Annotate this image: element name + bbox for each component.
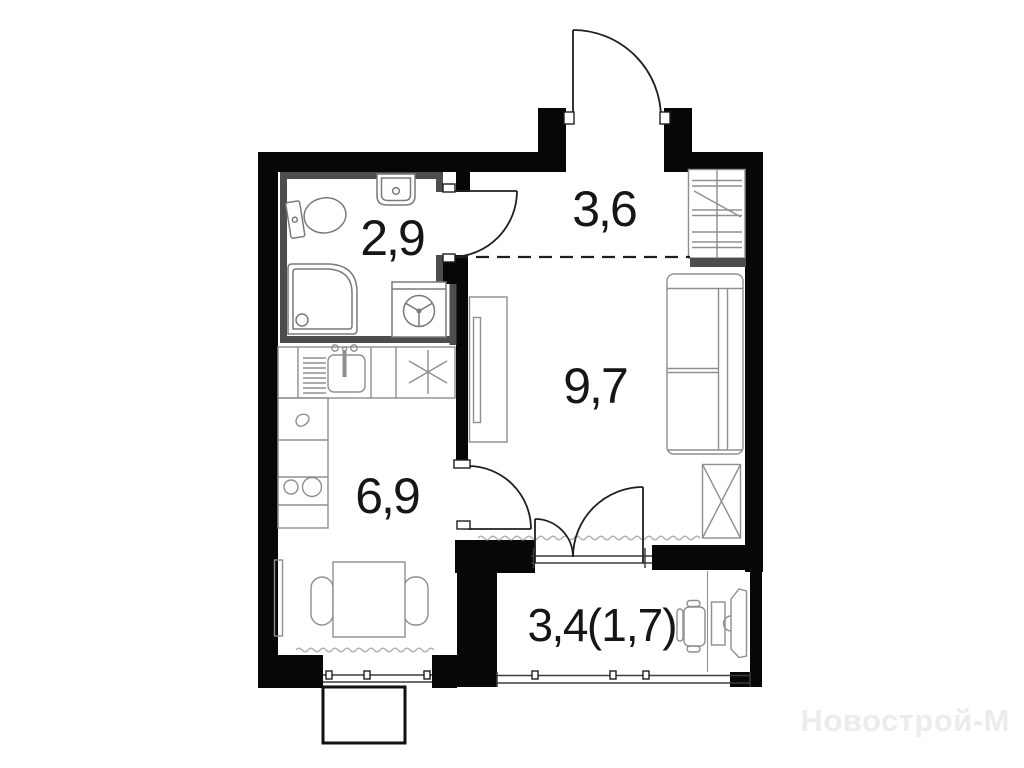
dining-table [333, 562, 405, 637]
wash-basin-icon [377, 174, 415, 205]
sofa-bed [667, 274, 743, 454]
kitchen-area-label: 6,9 [355, 467, 419, 525]
spout-icon [296, 414, 309, 426]
hob-burners-icon [284, 478, 322, 497]
burner-asterisk-icon [409, 350, 447, 394]
bathroom-door [443, 184, 517, 262]
balcony-glazing [497, 671, 750, 687]
balcony-block-window [531, 548, 652, 568]
hallway-area-label: 3,6 [572, 180, 636, 238]
office-chair-icon [677, 601, 705, 653]
exterior-box [323, 687, 405, 743]
balcony-area-counted: (1,7) [587, 599, 677, 651]
balcony-area-label: 3,4(1,7) [527, 598, 676, 652]
shower-tray-icon [288, 264, 357, 334]
floor-plan-canvas: 2,9 3,6 9,7 6,9 3,4(1,7) Новострой-М [0, 0, 1024, 768]
balcony-area-total: 3,4 [527, 599, 586, 651]
chair-icon [311, 577, 333, 625]
wardrobe-hallway [689, 170, 747, 268]
kitchen-window [323, 671, 432, 682]
bathroom-area-label: 2,9 [360, 209, 424, 267]
x-cabinet [703, 465, 741, 539]
floor-plan-drawing [0, 0, 1024, 768]
dish-rack-icon [303, 358, 326, 393]
interior-door [454, 460, 531, 529]
balcony-door [535, 487, 643, 563]
living-room-area-label: 9,7 [563, 357, 627, 415]
chair-icon [404, 577, 428, 625]
watermark: Новострой-М [801, 703, 1011, 739]
sliding-wardrobe [470, 297, 508, 442]
kitchen-sink-icon [328, 345, 365, 392]
washing-machine-icon [392, 282, 446, 337]
entrance-door [564, 30, 670, 124]
desk [712, 589, 747, 658]
toilet-icon [286, 194, 349, 239]
